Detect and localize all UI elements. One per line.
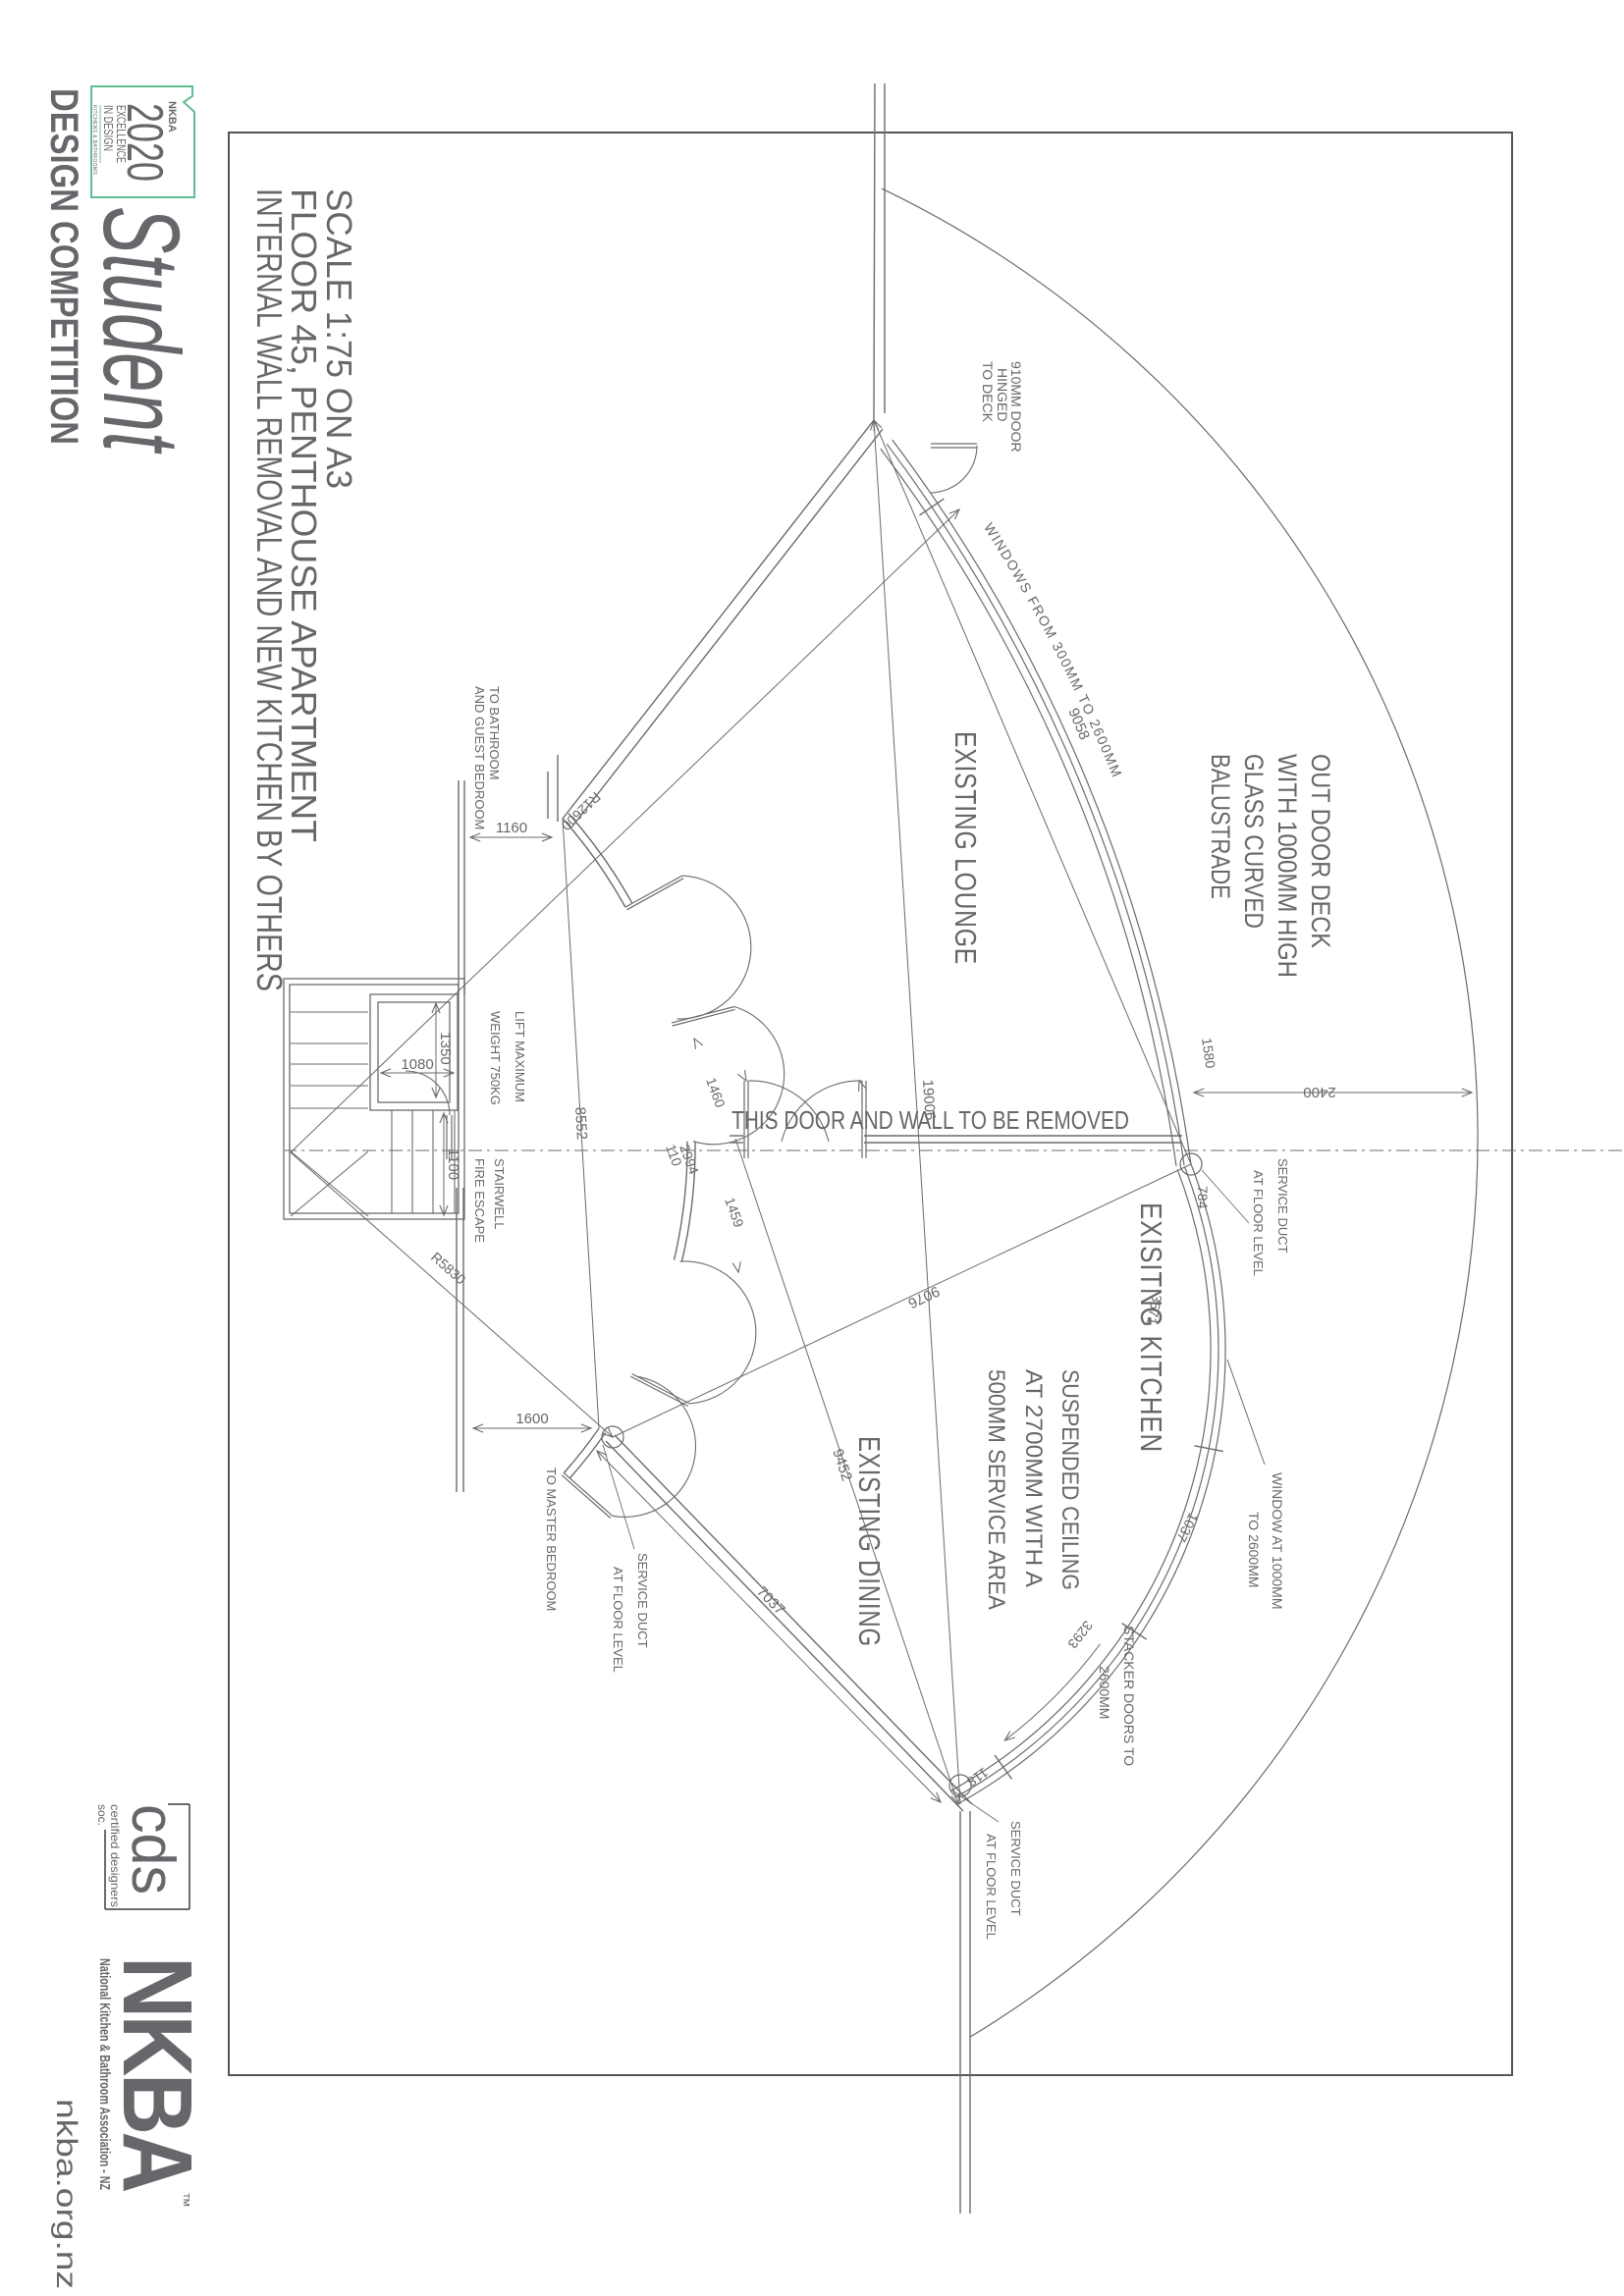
svg-text:AT FLOOR LEVEL: AT FLOOR LEVEL: [984, 1834, 999, 1940]
svg-text:INTERNAL WALL REMOVAL AND: INTERNAL WALL REMOVAL AND NEW KITCHEN BY…: [249, 188, 290, 991]
svg-text:STACKER DOORS TO: STACKER DOORS TO: [1121, 1626, 1137, 1766]
svg-text:TO BATHROOM: TO BATHROOM: [487, 686, 502, 780]
svg-text:certified designers: certified designers: [108, 1804, 122, 1907]
svg-text:FLOOR 45, PENTHOUSE APARTME: FLOOR 45, PENTHOUSE APARTMENT: [284, 188, 324, 842]
svg-text:SERVICE DUCT: SERVICE DUCT: [1008, 1821, 1023, 1916]
svg-text:BALUSTRADE: BALUSTRADE: [1206, 754, 1235, 899]
svg-text:1460: 1460: [703, 1076, 729, 1110]
svg-text:cds: cds: [119, 1804, 187, 1895]
svg-text:EXISTING LOUNGE: EXISTING LOUNGE: [948, 731, 983, 965]
svg-text:9076: 9076: [905, 1282, 942, 1311]
svg-text:HINGED: HINGED: [995, 368, 1010, 421]
svg-text:TO 2600MM: TO 2600MM: [1246, 1512, 1262, 1588]
svg-text:8552: 8552: [571, 1106, 590, 1140]
svg-text:1080: 1080: [401, 1056, 433, 1073]
svg-text:1037: 1037: [1173, 1511, 1201, 1545]
svg-text:AT FLOOR LEVEL: AT FLOOR LEVEL: [1251, 1170, 1266, 1276]
svg-text:1580: 1580: [1199, 1037, 1218, 1069]
svg-text:DESIGN COMPETITION: DESIGN COMPETITION: [42, 88, 85, 445]
svg-text:784: 784: [1195, 1186, 1211, 1209]
svg-text:500MM SERVICE AREA: 500MM SERVICE AREA: [983, 1369, 1009, 1610]
svg-text:GLASS CURVED: GLASS CURVED: [1239, 754, 1269, 929]
svg-text:SCALE 1:75 ON A3: SCALE 1:75 ON A3: [319, 188, 359, 489]
svg-text:WITH 1000MM HIGH: WITH 1000MM HIGH: [1272, 754, 1302, 978]
svg-text:nkba.org.nz: nkba.org.nz: [50, 2099, 82, 2289]
svg-text:AND GUEST BEDROOM: AND GUEST BEDROOM: [472, 686, 487, 829]
svg-text:AT FLOOR LEVEL: AT FLOOR LEVEL: [611, 1567, 625, 1673]
svg-text:Student: Student: [81, 206, 201, 454]
svg-text:OUT DOOR DECK: OUT DOOR DECK: [1306, 754, 1335, 948]
svg-text:3293: 3293: [1064, 1618, 1096, 1652]
svg-text:STAIRWELL: STAIRWELL: [492, 1158, 507, 1229]
svg-text:1160: 1160: [496, 820, 527, 836]
svg-text:9452: 9452: [829, 1447, 855, 1483]
svg-text:910MM DOOR: 910MM DOOR: [1008, 361, 1024, 453]
svg-text:SERVICE DUCT: SERVICE DUCT: [1275, 1158, 1290, 1254]
svg-text:AT 2700MM WITH A: AT 2700MM WITH A: [1020, 1369, 1047, 1587]
svg-text:19006: 19006: [919, 1079, 939, 1121]
svg-text:7037: 7037: [753, 1583, 787, 1619]
svg-text:™: ™: [175, 2192, 191, 2208]
svg-text:KITCHENS & BATHROOMS: KITCHENS & BATHROOMS: [91, 105, 97, 176]
svg-text:TO DECK: TO DECK: [980, 361, 996, 423]
svg-text:2400: 2400: [1303, 1084, 1335, 1100]
svg-text:1100: 1100: [445, 1148, 461, 1180]
svg-text:NKBA: NKBA: [102, 1956, 212, 2192]
svg-text:National Kitchen & Bathroom As: National Kitchen & Bathroom Association …: [96, 1958, 113, 2190]
svg-text:1600: 1600: [515, 1411, 548, 1427]
svg-text:1350: 1350: [437, 1032, 454, 1064]
svg-text:TO MASTER BEDROOM: TO MASTER BEDROOM: [544, 1468, 559, 1611]
svg-text:LIFT MAXIMUM: LIFT MAXIMUM: [513, 1011, 527, 1102]
svg-text:WINDOW AT 1000MM: WINDOW AT 1000MM: [1270, 1472, 1285, 1610]
svg-text:EXISTING DINING: EXISTING DINING: [852, 1436, 887, 1647]
svg-text:SUSPENDED CEILING: SUSPENDED CEILING: [1056, 1369, 1083, 1590]
svg-text:soc.: soc.: [95, 1804, 109, 1826]
svg-text:IN DESIGN: IN DESIGN: [101, 105, 116, 151]
svg-text:WEIGHT 750KG: WEIGHT 750KG: [488, 1011, 503, 1105]
svg-text:EXCELLENCE: EXCELLENCE: [114, 105, 129, 163]
svg-text:2600MM: 2600MM: [1097, 1666, 1112, 1719]
svg-text:1459: 1459: [722, 1196, 747, 1230]
svg-text:EXISITNG KITCHEN: EXISITNG KITCHEN: [1134, 1202, 1168, 1453]
svg-text:FIRE ESCAPE: FIRE ESCAPE: [472, 1158, 487, 1243]
svg-text:SERVICE DUCT: SERVICE DUCT: [635, 1553, 650, 1648]
